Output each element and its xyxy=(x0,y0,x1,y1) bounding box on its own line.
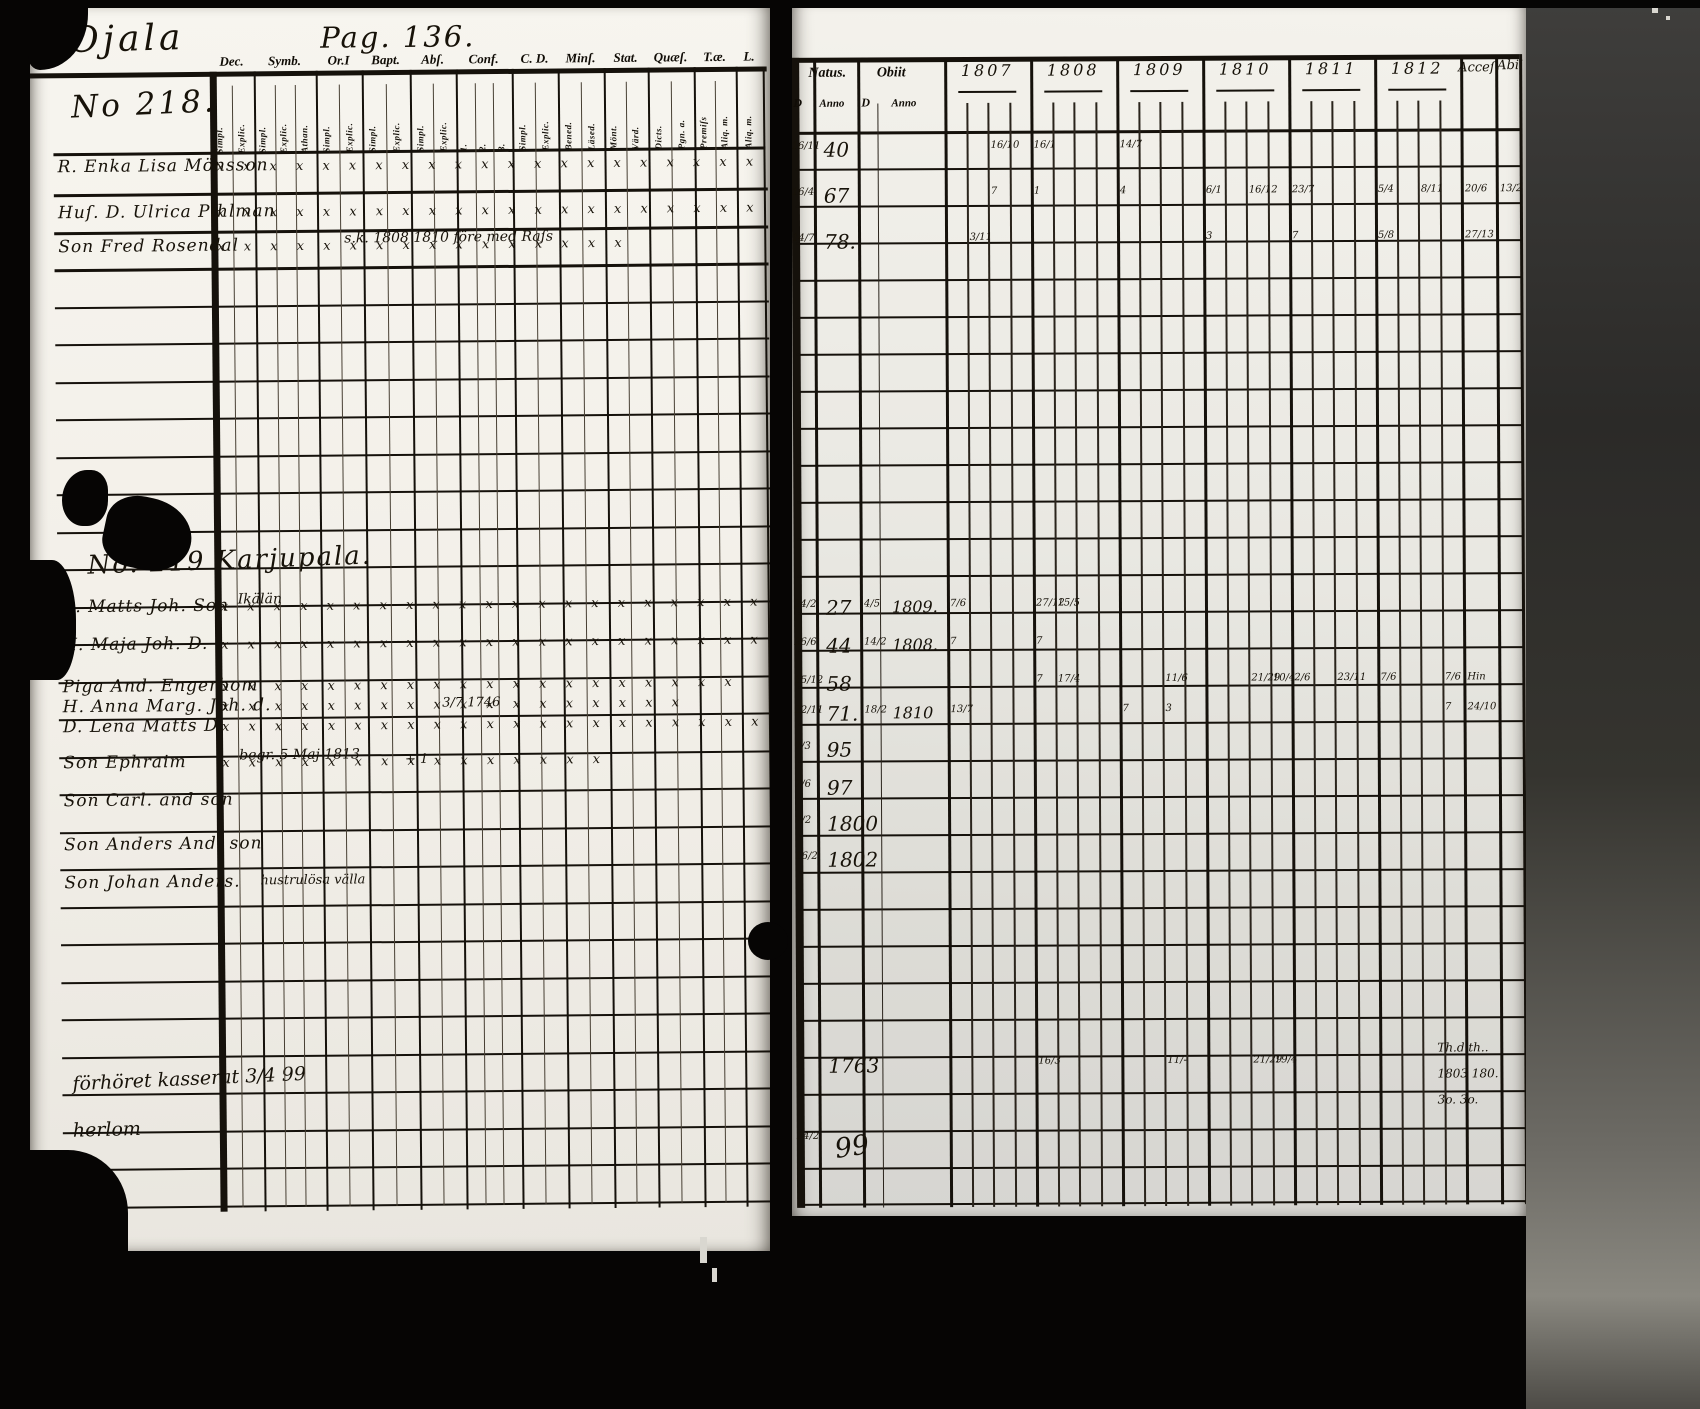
cell-entry: 7 xyxy=(1036,675,1042,685)
bottom-total-value: 99 xyxy=(833,1129,871,1165)
left-page: Ojala Pag. 136. No 218. No. 219 Karjupal… xyxy=(28,4,772,1251)
rule-line xyxy=(797,387,1522,393)
household-number-218: No 218. xyxy=(70,83,217,125)
column-sub-label: Simpl. xyxy=(368,84,378,152)
column-subline xyxy=(1267,101,1275,1205)
rule-line xyxy=(801,1090,1526,1096)
cell-entry: 2/6 xyxy=(1294,673,1310,683)
column-subline xyxy=(987,103,995,1207)
cell-entry: 16/1 xyxy=(1034,141,1057,151)
column-group-label: Quæſ. xyxy=(647,49,693,65)
margin-note: 1803 180. xyxy=(1437,1066,1498,1080)
film-border-top xyxy=(0,0,1700,8)
row-name: Son Fred Rosendal xyxy=(58,236,239,258)
rule-line xyxy=(797,424,1522,430)
natus-day: 26/6 xyxy=(794,638,817,648)
column-subline xyxy=(1159,102,1167,1206)
bottom-total-day: 24/2 xyxy=(797,1132,820,1142)
column-subline xyxy=(1310,101,1318,1205)
natus-anno: 44 xyxy=(826,634,852,658)
natus-anno: 1800 xyxy=(827,811,878,835)
row-marks: x x x x x x x x x x x x x x x x x x x x … xyxy=(221,594,786,614)
cell-entry: 6/1 xyxy=(1206,186,1222,196)
d-header-2: D xyxy=(861,96,870,111)
column-sub-label: Explic. xyxy=(237,85,247,153)
cell-entry: 8/11 xyxy=(1421,185,1444,195)
cell-entry: 3/11 xyxy=(970,233,993,243)
column-line xyxy=(944,61,953,1207)
column-sub-label: Simpl. xyxy=(415,84,425,152)
film-edge-band xyxy=(1526,0,1700,1409)
column-sub-label: Pgn. a. xyxy=(676,81,686,149)
cell-entry: 7/6 xyxy=(1380,673,1396,683)
column-subline xyxy=(1245,102,1253,1206)
cell-entry: 16/12 xyxy=(1249,185,1278,195)
cell-entry: 4 xyxy=(1120,186,1126,196)
year-underline xyxy=(1044,90,1102,92)
rule-line xyxy=(797,498,1522,504)
column-group-label: Conf. xyxy=(455,51,511,68)
natus-anno: 78. xyxy=(824,230,856,254)
natus-anno: 58 xyxy=(826,672,852,696)
rule-line xyxy=(800,1016,1525,1022)
natus-anno: 71. xyxy=(826,702,858,726)
column-subline xyxy=(1331,101,1339,1205)
accessit-entry: 27/13 xyxy=(1465,230,1494,240)
column-group-label: T.æ. xyxy=(693,49,735,65)
row-marks: x x x x x x x x x x x x x x x x x x x x … xyxy=(221,632,786,652)
rule-line xyxy=(798,572,1523,578)
row-name: H. Maja Joh. D. xyxy=(62,634,208,655)
column-sub-label: Mönt. xyxy=(609,82,619,150)
natus-day: 7/6 xyxy=(795,780,811,790)
film-border-bottom-right xyxy=(790,1216,1526,1409)
cell-entry: 5/8 xyxy=(1378,231,1394,241)
natus-day: 24/2 xyxy=(794,600,817,610)
column-sub-label: 3. xyxy=(496,83,506,151)
natus-day: 16/2 xyxy=(795,852,818,862)
year-underline xyxy=(1388,88,1446,90)
obiit-anno: 1809. xyxy=(892,597,938,616)
bottom-note-2: herlom xyxy=(73,1118,142,1142)
cell-entry: 19/4 xyxy=(1275,1055,1298,1065)
natus-anno: 1802 xyxy=(827,847,878,871)
column-subline xyxy=(1052,103,1060,1207)
column-subline xyxy=(1439,101,1447,1205)
year-header: 1809 xyxy=(1116,60,1202,79)
column-subline xyxy=(1138,102,1146,1206)
row-marks: x x x x x x x x x x x x x x x x x x x x … xyxy=(217,200,809,221)
rule-line xyxy=(800,1053,1525,1059)
column-sub-label: Explic. xyxy=(279,85,289,153)
film-mark-2 xyxy=(712,1268,717,1282)
year-header: 1811 xyxy=(1288,59,1374,78)
rule-line xyxy=(799,757,1524,763)
rule-line xyxy=(801,1127,1526,1133)
abiit-header: Abii xyxy=(1497,58,1523,73)
cell-entry: 23/7 xyxy=(1292,185,1315,195)
column-group-label: Or.I xyxy=(315,52,361,68)
cell-entry: 1 xyxy=(1034,187,1040,197)
rule-line xyxy=(797,350,1522,356)
abiit-entry: 13/2 xyxy=(1500,184,1523,194)
column-line xyxy=(1030,61,1039,1207)
column-subline xyxy=(1353,101,1361,1205)
margin-note: Th.d th.. xyxy=(1437,1040,1488,1054)
rule-line xyxy=(798,535,1523,541)
column-line xyxy=(1116,60,1125,1206)
rule-line xyxy=(799,831,1524,837)
obiit-anno: 1808. xyxy=(892,635,938,654)
ink-blot-small xyxy=(62,470,108,526)
cell-entry: 5/4 xyxy=(1378,185,1394,195)
column-sub-label: Simpl. xyxy=(258,85,268,153)
obiit-day: 14/2 xyxy=(864,637,887,647)
rule-line xyxy=(796,165,1521,171)
natus-day: 7/2 xyxy=(795,816,811,826)
film-speck-1 xyxy=(1652,8,1658,13)
cell-entry: 23/11 xyxy=(1337,673,1366,683)
column-sub-label: Simpl. xyxy=(321,85,331,153)
cell-entry: 7 xyxy=(1122,704,1128,714)
header-rule-2 xyxy=(793,128,1519,135)
column-sub-label: Explic. xyxy=(438,84,448,152)
column-subline xyxy=(877,103,884,1207)
year-underline xyxy=(958,91,1016,93)
anno-header-1: Anno xyxy=(819,98,844,110)
edge-smudge xyxy=(28,560,76,680)
natus-anno: 1763 xyxy=(828,1053,879,1077)
column-sub-label: Aliq. m. xyxy=(719,81,729,149)
column-subline xyxy=(1009,103,1017,1207)
accessit-header: Acceſ. xyxy=(1458,60,1499,75)
row-name: Son Carl. and son xyxy=(64,790,234,812)
natus-anno: 97 xyxy=(827,776,853,800)
rule-line xyxy=(796,313,1521,319)
film-speck-2 xyxy=(1666,16,1670,20)
column-group-label: Bapt. xyxy=(361,52,409,68)
natus-day: 16/11 xyxy=(792,142,821,152)
cell-entry: 7 xyxy=(950,637,956,647)
column-group-label: Symb. xyxy=(253,53,315,70)
obiit-header: Obiit xyxy=(859,65,923,81)
column-line xyxy=(857,62,866,1208)
cell-entry: 11/6 xyxy=(1165,674,1188,684)
column-sub-label: Läsed. xyxy=(586,82,596,150)
rule-line xyxy=(799,868,1524,874)
book-gutter xyxy=(770,0,792,1409)
row-marks: x x x x x x x x x x x x x x x x xyxy=(217,236,623,255)
year-header: 1807 xyxy=(944,61,1030,80)
column-group-label: C. D. xyxy=(511,50,557,66)
cell-entry: 13/7 xyxy=(950,705,973,715)
row-name: D. Lena Matts D. xyxy=(63,716,225,738)
cell-entry: 7 xyxy=(1445,702,1451,712)
column-subline xyxy=(1181,102,1189,1206)
rule-line xyxy=(800,905,1525,911)
column-sub-label: Explic. xyxy=(344,84,354,152)
right-page: Natus.Obiit180718081809181018111812Acceſ… xyxy=(790,2,1526,1217)
column-sub-label: Simpl. xyxy=(517,83,527,151)
column-group-label: Stat. xyxy=(603,50,647,66)
anno-header-2: Anno xyxy=(891,97,916,109)
year-header: 1810 xyxy=(1202,59,1288,78)
accessit-entry: Hin xyxy=(1467,672,1485,682)
natus-anno: 27 xyxy=(826,596,852,620)
row-tail-note: hustrulösa välla xyxy=(260,872,365,888)
column-sub-label: Explic. xyxy=(540,83,550,151)
d-header-1: D xyxy=(793,96,802,111)
column-sub-label: Simpl. xyxy=(215,86,225,154)
rule-line xyxy=(801,1200,1526,1206)
row-marks: x x x x x x x x x x x x x x x x x x x x … xyxy=(217,154,835,175)
column-sub-label: Bened. xyxy=(563,82,573,150)
natus-anno: 67 xyxy=(824,184,850,208)
column-sub-label: Värd. xyxy=(631,82,641,150)
rule-line xyxy=(796,239,1521,245)
cell-entry: 7/6 xyxy=(950,599,966,609)
gutter-smudge xyxy=(748,922,788,960)
column-subline xyxy=(1073,102,1081,1206)
column-sub-label: Explic. xyxy=(392,84,402,152)
year-underline xyxy=(1302,89,1360,91)
obiit-day: 18/2 xyxy=(864,705,887,715)
obiit-anno: 1810 xyxy=(892,703,933,722)
rule-line xyxy=(797,461,1522,467)
row-marks: x x x x x x x x x x x x x x x x x x x x xyxy=(221,675,733,695)
column-group-label: Dec. xyxy=(209,53,253,69)
rule-line xyxy=(796,202,1521,208)
column-subline xyxy=(1224,102,1232,1206)
rule-line xyxy=(800,942,1525,948)
column-subline xyxy=(1095,102,1103,1206)
cell-entry: 16/3 xyxy=(1038,1057,1061,1067)
row-name: Son Anders And. son xyxy=(64,833,263,855)
natus-day: 16/4 xyxy=(792,188,815,198)
cell-entry: 15/5 xyxy=(1057,598,1080,608)
accessit-entry: 20/6 xyxy=(1465,184,1488,194)
accessit-entry: 24/10 xyxy=(1467,702,1496,712)
cell-entry: 3 xyxy=(1165,704,1171,714)
column-sub-label: Dicts. xyxy=(653,81,663,149)
natus-day: 14/7 xyxy=(792,234,815,244)
cell-entry: 7 xyxy=(991,187,997,197)
natus-header: Natus. xyxy=(797,66,857,82)
row-tail-note: + 1 xyxy=(405,752,428,767)
column-subline xyxy=(1396,101,1404,1205)
year-header: 1812 xyxy=(1374,58,1460,77)
column-sub-label: Athan. xyxy=(299,85,309,153)
column-subline xyxy=(1417,101,1425,1205)
year-underline xyxy=(1216,89,1274,91)
page-number: Pag. 136. xyxy=(320,19,475,54)
column-group-label: Abſ. xyxy=(409,51,455,67)
row-tail-note: 3/7 1746 xyxy=(442,695,500,711)
cell-entry: 7/6 xyxy=(1445,672,1461,682)
column-subline xyxy=(966,103,974,1207)
rule-line xyxy=(796,276,1521,282)
year-header: 1808 xyxy=(1030,60,1116,79)
row-name: B. Matts Joh. Son xyxy=(62,596,229,618)
column-sub-label: Premiſs xyxy=(698,81,708,149)
year-underline xyxy=(1130,90,1188,92)
cell-entry: 7 xyxy=(1292,231,1298,241)
cell-entry: 17/4 xyxy=(1058,674,1081,684)
column-sub-label: 2. xyxy=(478,83,488,151)
rule-line xyxy=(801,1164,1526,1170)
natus-day: 22/11 xyxy=(794,706,823,716)
cell-entry: 7 xyxy=(1036,637,1042,647)
column-line xyxy=(1495,58,1504,1204)
rule-line xyxy=(800,979,1525,985)
film-border-bottom-left xyxy=(0,1255,790,1409)
rule-line xyxy=(799,794,1524,800)
row-name: Son Ephraim xyxy=(63,752,186,773)
rule-line xyxy=(798,683,1523,689)
natus-anno: 95 xyxy=(827,738,853,762)
page-left-border xyxy=(791,58,805,1208)
film-border-left xyxy=(0,0,30,1409)
column-group-label: Minſ. xyxy=(557,50,603,66)
left-page-content: Ojala Pag. 136. No 218. No. 219 Karjupal… xyxy=(22,0,778,1254)
column-sub-label: 1. xyxy=(459,83,469,151)
natus-anno: 40 xyxy=(824,138,850,162)
cell-entry: 14/7 xyxy=(1120,140,1143,150)
column-sub-label: Aliq. m. xyxy=(743,81,753,149)
obiit-day: 4/5 xyxy=(864,599,880,609)
natus-day: 7/3 xyxy=(795,742,811,752)
row-name: Son Johan Anders. xyxy=(64,872,240,894)
bottom-note-1: förhöret kasserat 3/4 99 xyxy=(72,1063,306,1095)
cell-entry: 3 xyxy=(1206,232,1212,242)
margin-note: 3o. 3o. xyxy=(1438,1092,1479,1106)
cell-entry: 11/- xyxy=(1167,1056,1187,1066)
cell-entry: 10/4 xyxy=(1273,673,1296,683)
film-mark-1 xyxy=(700,1237,707,1263)
header-rule xyxy=(27,66,767,78)
column-group-label: L. xyxy=(735,48,762,64)
natus-day: 15/12 xyxy=(794,676,823,686)
right-page-content: Natus.Obiit180718081809181018111812Acceſ… xyxy=(787,0,1529,1219)
cell-entry: 16/10 xyxy=(991,141,1020,151)
